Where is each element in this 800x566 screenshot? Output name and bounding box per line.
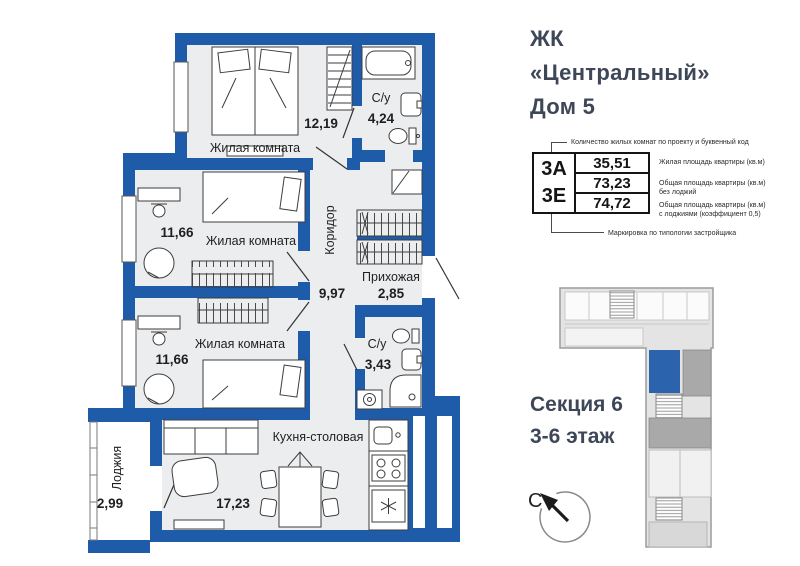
project-title-line3: Дом 5 [530, 90, 710, 124]
armchair-bedroom2 [144, 248, 174, 278]
window-room1 [174, 62, 188, 132]
compass: С [528, 490, 590, 542]
minimap-stair-core-2 [656, 394, 682, 418]
window-bedroom3 [122, 320, 136, 386]
apartment-codes: 3А 3Е [534, 154, 576, 212]
floorplan-page: { "header": { "project": "ЖК", "name": "… [0, 0, 800, 566]
window-bedroom2 [122, 196, 136, 262]
room-label-su2: С/у [368, 337, 388, 351]
stove-icon [372, 455, 405, 481]
minimap-stair-core-3 [656, 498, 682, 520]
armchair-bedroom3 [144, 374, 174, 404]
project-title-line2: «Центральный» [530, 56, 710, 90]
project-title-line1: ЖК [530, 22, 710, 56]
section-label: Секция 6 [530, 389, 623, 421]
tv-stand [174, 520, 224, 529]
window-kitchen-1 [413, 416, 425, 528]
compass-north-label: С [528, 490, 542, 512]
floors-label: 3-6 этаж [530, 421, 623, 453]
toilet-icon-su1 [389, 128, 420, 144]
room-label-su1: С/у [372, 91, 392, 105]
room-area-living1: 12,19 [304, 116, 338, 131]
legend-top-note: Количество жилых комнат по проекту и бук… [571, 138, 749, 147]
section-info: Секция 6 3-6 этаж [530, 389, 623, 453]
room-label-loggia: Лоджия [110, 446, 124, 490]
kitchen-sink-icon [374, 427, 392, 444]
project-title: ЖК «Центральный» Дом 5 [530, 22, 710, 124]
total-area-note: Общая площадь квартиры (кв.м) без лоджий [659, 179, 766, 197]
minimap-selected-unit[interactable] [649, 350, 680, 393]
room-label-kitchen: Кухня-столовая [273, 430, 364, 444]
legend-leader-bottom-h [551, 232, 604, 233]
hall-closet [392, 170, 422, 194]
total-area-with-loggia-value: 74,72 [576, 194, 648, 212]
room-area-su2: 3,43 [365, 357, 392, 372]
apartment-code-table: 3А 3Е 35,51 73,23 74,72 [532, 152, 650, 214]
wardrobe-bedroom2 [192, 261, 273, 287]
fridge-icon [372, 490, 405, 522]
legend-leader-bottom-v [551, 212, 552, 233]
toilet-icon-su2 [393, 329, 420, 343]
minimap-unit-gray-2 [649, 418, 711, 448]
wardrobe-room1 [327, 47, 352, 110]
minimap-stair-core-1 [610, 291, 634, 318]
apartment-plan: Жилая комната 12,19 С/у 4,24 Жилая комна… [88, 33, 460, 553]
legend-leader-top-v [551, 142, 552, 152]
bathtub-icon [362, 47, 415, 79]
bed-double [212, 47, 298, 135]
room-area-su1: 4,24 [368, 111, 395, 126]
room-label-bedroom3: Жилая комната [195, 337, 285, 351]
room-area-hallway: 2,85 [378, 286, 405, 301]
apartment-areas: 35,51 73,23 74,72 [576, 154, 648, 212]
room-label-corridor: Коридор [323, 205, 337, 254]
legend-bottom-note: Маркировка по типологии застройщика [608, 229, 736, 238]
living-area-value: 35,51 [576, 154, 648, 174]
room-area-kitchen: 17,23 [216, 496, 250, 511]
washing-machine-icon [357, 390, 382, 409]
rug [171, 456, 220, 498]
living-area-note: Жилая площадь квартиры (кв.м) [659, 158, 765, 167]
total-area-value: 73,23 [576, 174, 648, 194]
wardrobe-bedroom3 [198, 298, 268, 323]
window-kitchen-2 [437, 416, 452, 528]
legend-leader-top-h [551, 142, 567, 143]
compass-arrow-shaft [552, 505, 568, 521]
room-area-corridor: 9,97 [319, 286, 345, 301]
sink-icon-su1 [401, 93, 422, 116]
shower-icon [390, 375, 421, 407]
bed-bedroom3 [203, 360, 305, 408]
room-count-code: 3А [541, 156, 567, 183]
hall-wardrobe-2 [357, 240, 422, 264]
room-label-hallway: Прихожая [362, 270, 420, 284]
total-area-loggia-note: Общая площадь квартиры (кв.м) с лоджиями… [659, 201, 766, 219]
room-area-bedroom3: 11,66 [155, 352, 189, 367]
hall-wardrobe-1 [357, 210, 422, 236]
room-area-loggia: 2,99 [97, 496, 123, 511]
minimap-unit-gray-1 [683, 350, 711, 396]
room-label-living1: Жилая комната [210, 141, 300, 155]
sink-icon-su2 [402, 349, 422, 370]
bed-bedroom2 [203, 172, 305, 222]
typology-code: 3Е [542, 183, 566, 210]
room-label-bedroom2: Жилая комната [206, 234, 296, 248]
sofa-icon [164, 420, 258, 454]
kitchen-counter [369, 420, 408, 530]
room-area-bedroom2: 11,66 [160, 225, 194, 240]
